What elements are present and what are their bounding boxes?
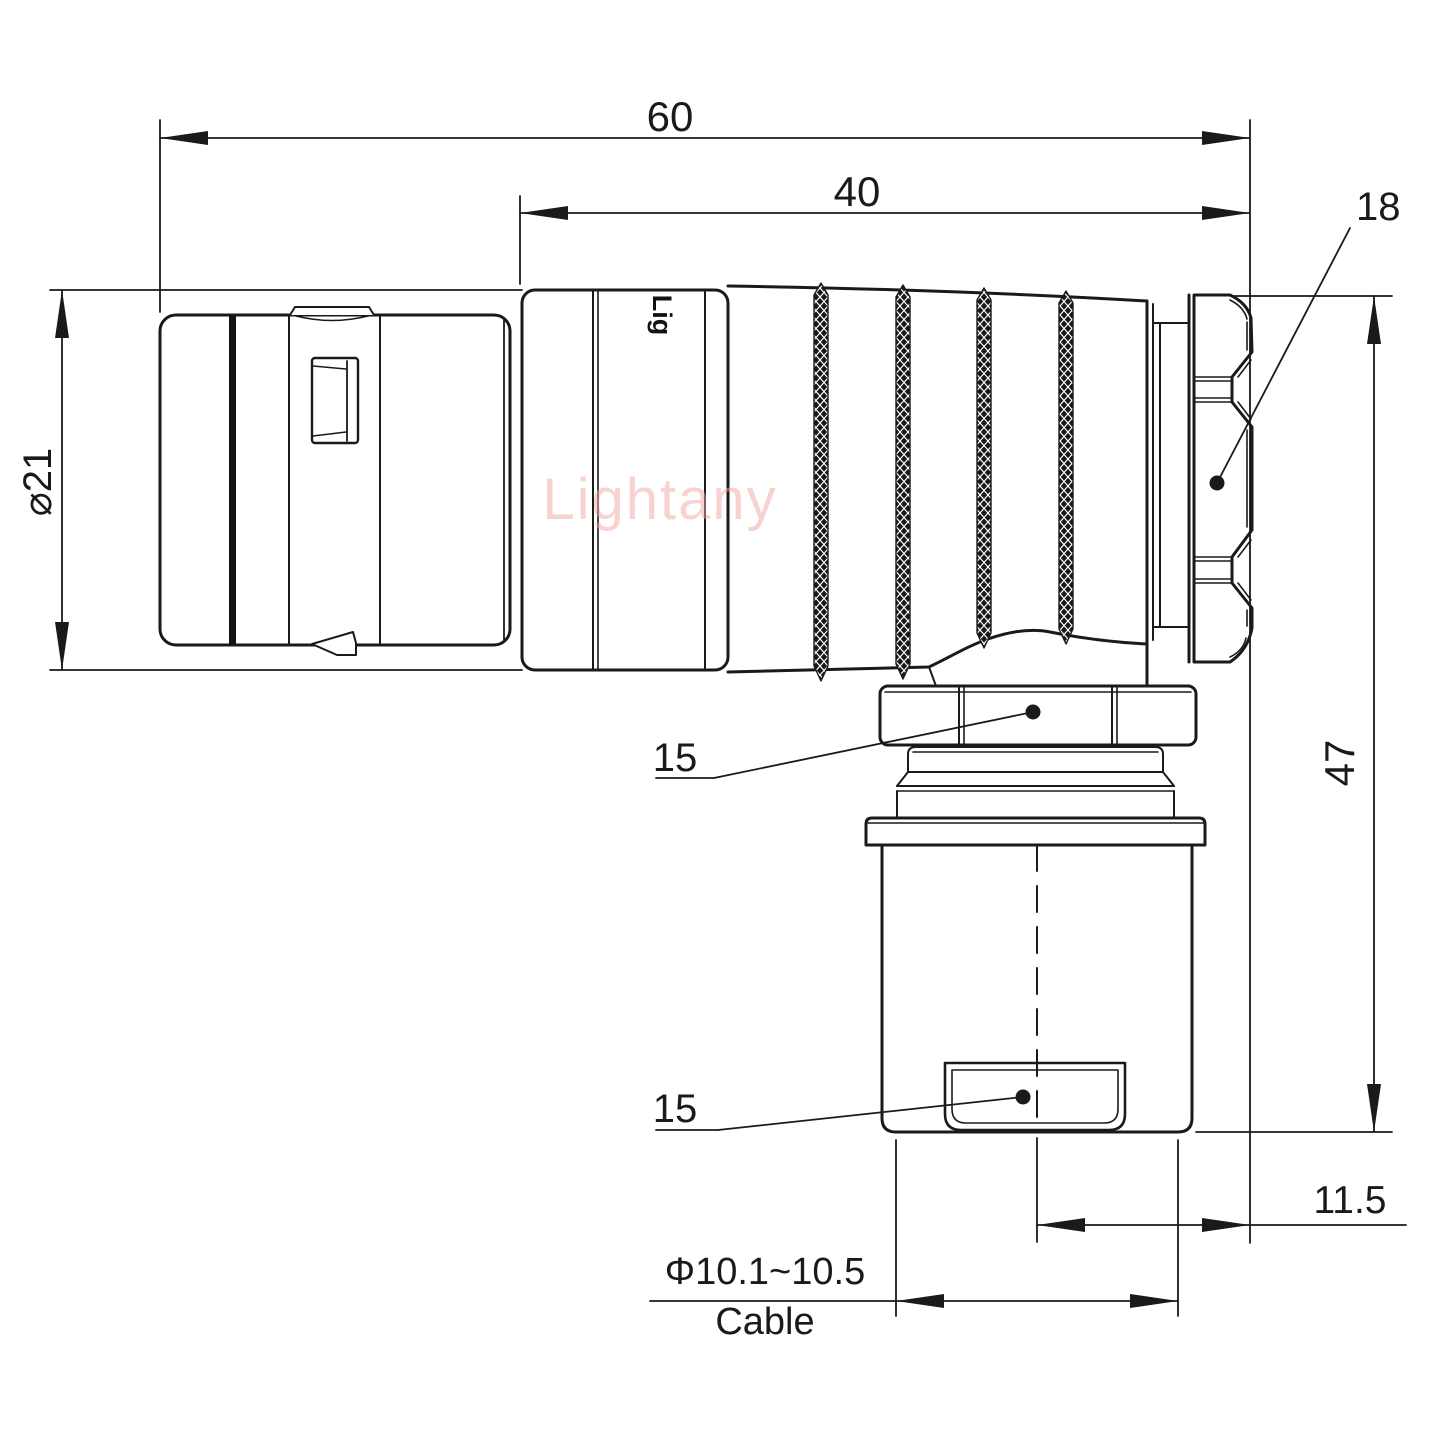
dim-label-shell-diameter: ⌀21: [16, 412, 60, 552]
key-bump: [290, 307, 374, 315]
dim-label-backnut: 15: [645, 737, 705, 779]
knurl-band: [896, 285, 910, 679]
watermark: Lightany: [505, 466, 815, 533]
dim-label-overall-length: 60: [620, 95, 720, 139]
connector-drawing: [0, 0, 1440, 1440]
dim-label-nut: 18: [1356, 186, 1401, 228]
knurl-band: [977, 288, 991, 648]
latch-window: [312, 358, 358, 443]
dim-label-total-height: 47: [1318, 693, 1362, 833]
drawing-canvas: Lightany Lig 60 40 18 ⌀21 47 15 15 11.5 …: [0, 0, 1440, 1440]
cable-clamp: [945, 1063, 1125, 1130]
dim-label-cable-word: Cable: [655, 1303, 875, 1343]
knurl-band: [814, 283, 828, 681]
dimension-60: [160, 120, 1250, 312]
shell-brand-mark: Lig: [633, 283, 691, 347]
front-shell: [160, 307, 510, 655]
knurl-bands: [814, 283, 1073, 681]
dim-label-cable-diameter: Φ10.1~10.5: [655, 1253, 875, 1293]
elbow-rings: [897, 747, 1174, 817]
dim-label-rear-length: 40: [807, 170, 907, 214]
dim-label-cable-offset: 11.5: [1290, 1181, 1410, 1222]
dim-label-clamp: 15: [645, 1088, 705, 1130]
knurl-band: [1059, 291, 1073, 644]
washer-collar: [1154, 323, 1189, 627]
